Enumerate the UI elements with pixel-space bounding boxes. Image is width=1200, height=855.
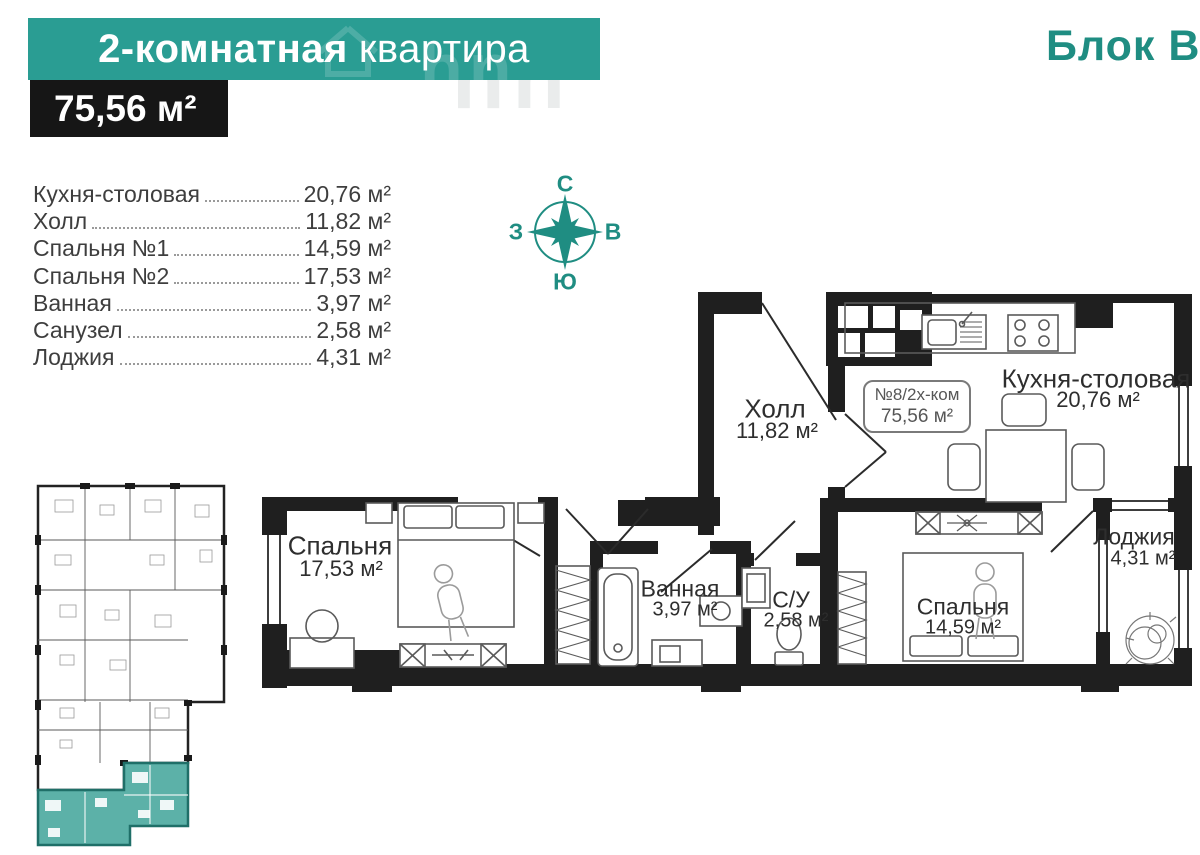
total-area-badge: 75,56 м² (30, 80, 228, 137)
svg-text:hn: hn (420, 29, 518, 80)
plant-icon (1126, 612, 1176, 664)
watermark-house-icon: hn (28, 18, 600, 80)
room-area-wc: 2,58 м² (764, 610, 829, 633)
mini-floor-plan (35, 483, 227, 845)
unit-number-box: №8/2х-ком 75,56 м² (863, 380, 971, 433)
room-area-kitchen: 20,76 м² (1056, 387, 1140, 413)
room-area-loggia: 4,31 м² (1111, 548, 1176, 571)
unit-number: №8/2х-ком (875, 385, 960, 405)
room-area-bedroom-small: 14,59 м² (925, 617, 1001, 640)
compass-icon (527, 194, 603, 270)
room-area-bedroom-large: 17,53 м² (299, 556, 383, 582)
unit-area: 75,56 м² (881, 406, 953, 428)
title-banner: hn 2-комнатная квартира (28, 18, 600, 80)
floorplan-page: hn hn 2-комнатная квартира 75,56 м² Блок… (0, 0, 1200, 855)
room-area-hall: 11,82 м² (736, 418, 818, 444)
room-label-loggia: Лоджия (1093, 524, 1175, 551)
room-area-bathroom: 3,97 м² (653, 599, 718, 622)
